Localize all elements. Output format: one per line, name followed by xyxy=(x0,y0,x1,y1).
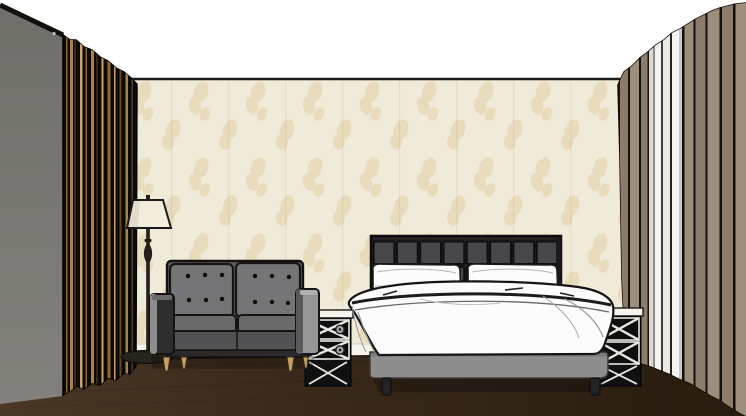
sofa-back-cushion-right xyxy=(236,263,300,317)
headboard-cell xyxy=(397,242,418,265)
scene-canvas xyxy=(0,0,746,416)
sofa-arm-left-top xyxy=(152,295,172,300)
bed-shadow xyxy=(372,378,606,392)
left-curtain xyxy=(63,28,137,400)
left-wall-panel xyxy=(0,5,63,404)
headboard-cell xyxy=(420,242,441,265)
headboard-cell xyxy=(374,242,395,265)
left-wall xyxy=(0,5,63,404)
drawer-knob-center xyxy=(339,349,342,352)
headboard-cell xyxy=(444,242,465,265)
sofa xyxy=(150,261,319,371)
headboard-cell xyxy=(513,242,534,265)
lamp-stem-ring xyxy=(145,239,152,242)
headboard-cell xyxy=(467,242,488,265)
sofa-back-cushion-left xyxy=(170,264,233,317)
wall-highlight-dot xyxy=(52,32,55,35)
sofa-base-frame xyxy=(168,350,308,357)
sofa-seat-front xyxy=(170,331,302,352)
bedroom-render: Sketch-style 3D rendering of a hotel bed… xyxy=(0,0,746,416)
sofa-arm-right-top xyxy=(300,290,317,295)
headboard-cell xyxy=(537,242,558,265)
drawer-knob-center xyxy=(339,328,342,331)
bed-leg xyxy=(590,378,600,395)
bed-leg xyxy=(382,378,391,395)
headboard-cell xyxy=(490,242,511,265)
sofa-arm-left-outer xyxy=(150,294,157,354)
sofa-arm-right-inner xyxy=(296,289,303,354)
